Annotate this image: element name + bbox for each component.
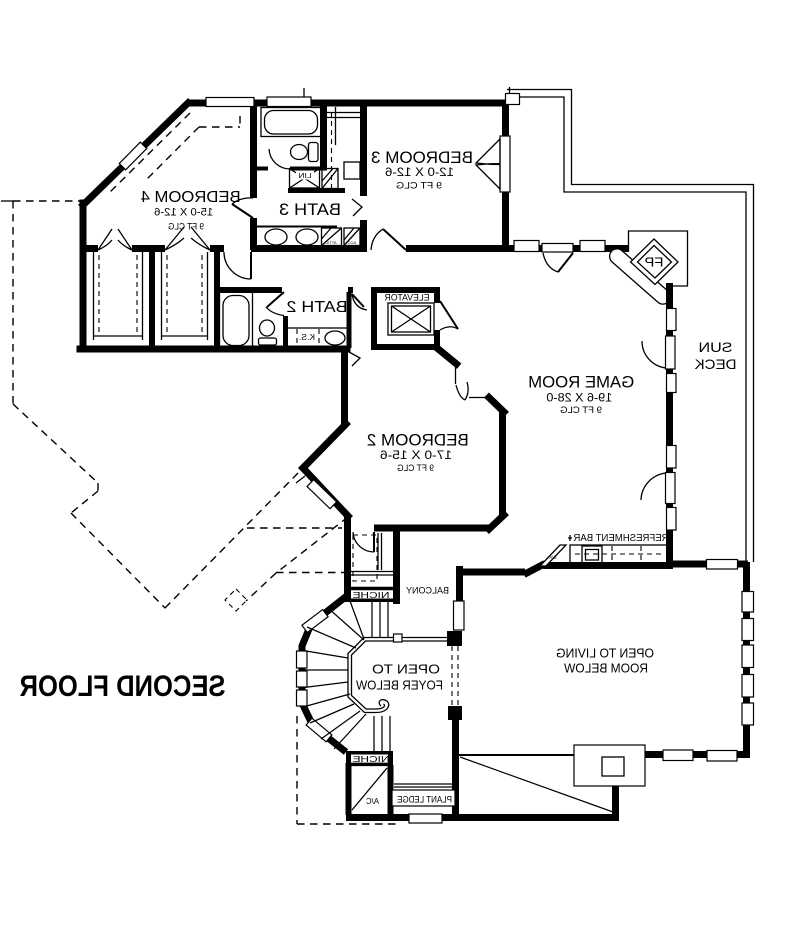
- svg-text:9 FT CLG: 9 FT CLG: [560, 405, 602, 416]
- svg-text:BEDROOM 3: BEDROOM 3: [371, 148, 473, 167]
- svg-text:NICHE: NICHE: [352, 590, 389, 600]
- svg-text:9 FT CLG: 9 FT CLG: [397, 463, 434, 474]
- svg-text:BEDROOM 4: BEDROOM 4: [140, 189, 240, 206]
- svg-text:FOYER BELOW: FOYER BELOW: [356, 679, 443, 693]
- svg-text:GAME ROOM: GAME ROOM: [528, 373, 634, 392]
- svg-text:LIN: LIN: [299, 171, 312, 180]
- svg-text:FP: FP: [645, 255, 664, 270]
- svg-text:SECOND FLOOR: SECOND FLOOR: [19, 670, 225, 703]
- svg-text:BEDROOM 2: BEDROOM 2: [367, 431, 469, 450]
- svg-text:BATH 2: BATH 2: [286, 299, 347, 316]
- svg-text:17-0 X 15-6: 17-0 X 15-6: [380, 450, 452, 462]
- svg-text:A/C: A/C: [366, 797, 379, 806]
- svg-text:PLANT LEDGE: PLANT LEDGE: [397, 795, 452, 806]
- svg-text:15-0 X 12-6: 15-0 X 12-6: [154, 207, 213, 219]
- svg-text:ROOM BELOW: ROOM BELOW: [563, 661, 648, 676]
- svg-text:DECK: DECK: [694, 356, 737, 372]
- svg-text:OPEN TO LIVING: OPEN TO LIVING: [556, 646, 654, 661]
- svg-text:9 FT CLG: 9 FT CLG: [168, 222, 204, 232]
- svg-text:ELEVATOR: ELEVATOR: [384, 293, 429, 304]
- svg-text:SUN: SUN: [699, 339, 733, 355]
- svg-text:REFRESHMENT BAR: REFRESHMENT BAR: [574, 533, 669, 544]
- svg-text:K.S.: K.S.: [299, 333, 315, 342]
- svg-text:NICHE: NICHE: [352, 754, 389, 764]
- svg-text:OPEN TO: OPEN TO: [372, 663, 440, 677]
- svg-text:19-6 X 28-0: 19-6 X 28-0: [546, 393, 612, 405]
- svg-text:BATH 3: BATH 3: [279, 200, 341, 219]
- svg-text:BALCONY: BALCONY: [405, 586, 449, 597]
- svg-text:12-0 X 12-6: 12-0 X 12-6: [385, 167, 454, 179]
- svg-text:S/A: S/A: [549, 555, 556, 560]
- svg-text:ATTIC: ATTIC: [325, 240, 336, 245]
- svg-text:ACC: ACC: [348, 240, 357, 245]
- svg-text:9 FT CLG: 9 FT CLG: [396, 181, 442, 192]
